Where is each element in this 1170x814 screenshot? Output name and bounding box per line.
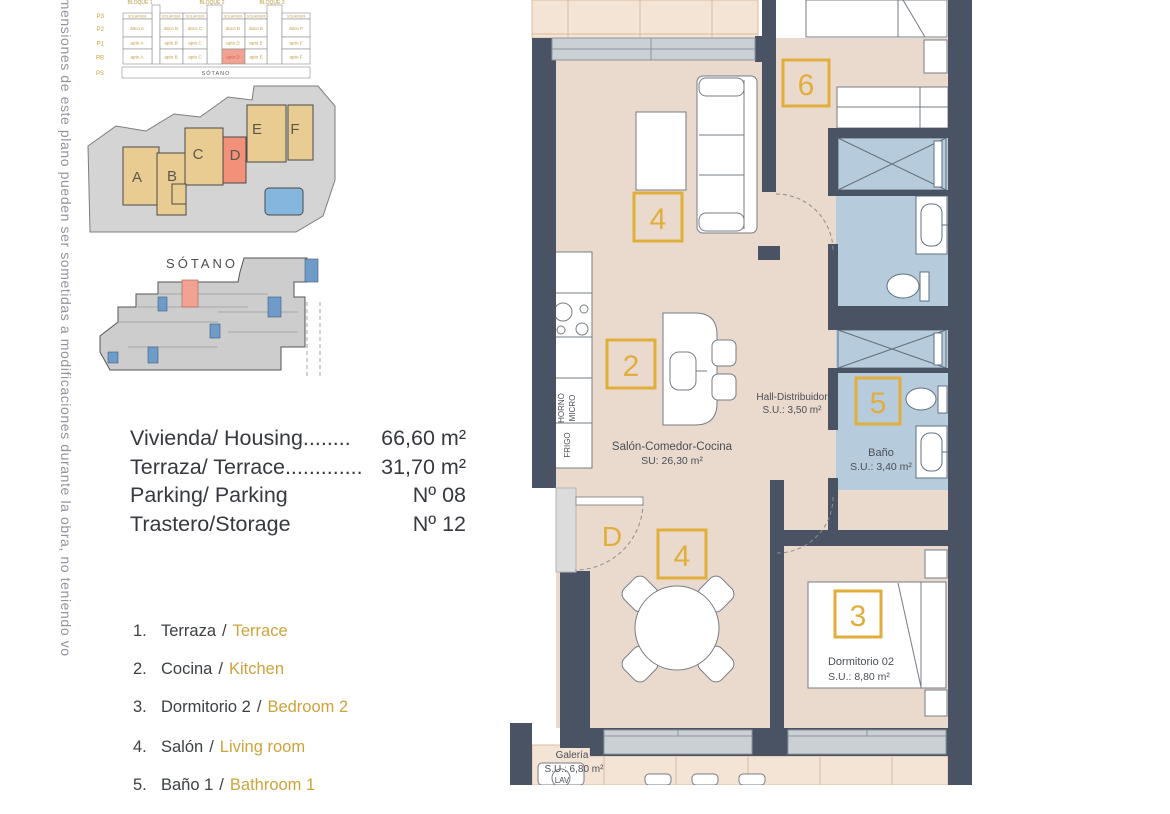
svg-text:5: 5 — [870, 387, 887, 420]
nightstand-2b — [925, 690, 947, 716]
svg-text:SOLARIUM: SOLARIUM — [186, 14, 205, 18]
svg-text:P2: P2 — [97, 27, 105, 33]
svg-text:apto C: apto C — [188, 55, 202, 60]
svg-text:SOLARIUM: SOLARIUM — [247, 14, 266, 18]
washbasin-1 — [916, 196, 950, 254]
wall-bath-divider-2 — [836, 306, 948, 330]
svg-text:apto E: apto E — [249, 41, 262, 46]
salon-label: Salón-Comedor-Cocina — [612, 441, 733, 453]
washbasin-2 — [916, 426, 950, 478]
terrace-top — [532, 0, 758, 38]
info-row-vivienda: Vivienda/ Housing........66,60 m² — [130, 424, 466, 453]
svg-text:3: 3 — [850, 600, 867, 633]
coffee-table — [636, 112, 686, 190]
svg-text:apto E: apto E — [249, 55, 262, 60]
svg-text:ático A: ático A — [130, 26, 145, 31]
info-row-trastero: Trastero/StorageNº 12 — [130, 510, 466, 539]
wall-right — [948, 0, 972, 785]
salon-area: SU: 26,30 m² — [641, 455, 703, 467]
dormitorio2-label: Dormitorio 02 — [828, 656, 894, 668]
svg-text:BLOQUE 1: BLOQUE 1 — [127, 0, 152, 6]
floor-plan: HORNO MICRO FRIGO — [490, 0, 1010, 785]
svg-text:C: C — [193, 146, 204, 163]
wall-bedroom2-left — [770, 480, 784, 728]
block-headers: BLOQUE 1 BLOQUE 2 BLOQUE 3 — [127, 0, 284, 6]
entrance-opening — [556, 488, 576, 572]
wardrobe-1 — [837, 87, 948, 128]
stool-2 — [712, 374, 736, 400]
svg-text:2: 2 — [623, 350, 640, 383]
svg-text:ático B: ático B — [164, 26, 178, 31]
svg-text:E: E — [252, 121, 262, 138]
wall-left-lower — [560, 571, 590, 748]
svg-text:SOLARIUM: SOLARIUM — [162, 14, 181, 18]
legend-item-3: 3. Dormitorio 2 / Bedroom 2 — [133, 698, 348, 717]
floor-labels: P3 P2 P1 PB PS — [96, 14, 105, 77]
wall-bedroom2-top — [782, 530, 948, 546]
horno-label: HORNO — [557, 393, 566, 423]
bano-area: S.U.: 3,40 m² — [850, 461, 912, 473]
hall-label: Hall-Distribuidor — [756, 392, 828, 403]
svg-text:P3: P3 — [97, 14, 105, 20]
svg-text:apto F: apto F — [289, 55, 302, 60]
svg-text:apto D: apto D — [226, 41, 240, 46]
lav-label: LAV — [555, 776, 570, 785]
legend-item-4: 4. Salón / Living room — [133, 738, 305, 757]
basement-band-label: SÓTANO — [202, 70, 231, 77]
stool-1 — [712, 340, 736, 366]
building-c — [185, 128, 223, 185]
micro-label: MICRO — [568, 395, 577, 422]
svg-text:4: 4 — [674, 540, 691, 573]
plan-sheet: imensiones de este plano pueden ser some… — [0, 0, 1170, 785]
sotano-title: SÓTANO — [166, 256, 238, 271]
site-plan: A B C D E F — [86, 84, 338, 234]
legend-item-2: 2. Cocina / Kitchen — [133, 660, 284, 679]
legend-item-5: 5. Baño 1 / Bathroom 1 — [133, 776, 315, 795]
wall-bath-left-3 — [828, 368, 838, 430]
sotano-highlight-storage — [182, 280, 198, 307]
svg-text:F: F — [290, 121, 299, 138]
info-row-terraza: Terraza/ Terrace.............31,70 m² — [130, 453, 466, 482]
svg-text:apto A: apto A — [130, 41, 144, 46]
svg-text:SOLARIUM: SOLARIUM — [128, 14, 147, 18]
wall-bath-left-1 — [828, 128, 838, 196]
svg-text:SOLARIUM: SOLARIUM — [224, 14, 243, 18]
wall-bath-divider-1 — [836, 190, 948, 196]
bed-1 — [806, 0, 947, 37]
dormitorio2-area: S.U.: 8,80 m² — [828, 671, 890, 683]
wall-bath-top — [828, 128, 948, 138]
bano-label: Baño — [868, 447, 894, 459]
svg-text:D: D — [230, 147, 241, 164]
svg-text:ático E: ático E — [249, 26, 263, 31]
badge-entrance: D — [602, 521, 622, 552]
island-sink — [670, 352, 696, 390]
svg-text:4: 4 — [650, 203, 667, 236]
svg-text:PS: PS — [96, 71, 104, 77]
svg-text:apto F: apto F — [289, 41, 302, 46]
sotano-dashed-lines — [307, 302, 320, 377]
frigo-label: FRIGO — [563, 432, 572, 457]
planter-3 — [739, 774, 765, 785]
svg-text:apto C: apto C — [188, 41, 202, 46]
svg-text:apto B: apto B — [164, 41, 177, 46]
wall-bedroom1-left — [762, 0, 776, 192]
surface-info: Vivienda/ Housing........66,60 m² Terraz… — [130, 424, 466, 538]
info-row-parking: Parking/ ParkingNº 08 — [130, 481, 466, 510]
planter-1 — [645, 774, 671, 785]
window-bottom-2 — [788, 730, 946, 754]
nightstand-2a — [925, 550, 947, 578]
svg-text:A: A — [132, 169, 142, 186]
door-leaf — [576, 497, 643, 505]
hall-area: S.U.: 3,50 m² — [763, 405, 823, 416]
svg-text:B: B — [167, 168, 177, 185]
galeria-area: S.U.: 6,80 m² — [545, 764, 605, 775]
wall-left-upper — [532, 38, 556, 488]
dining-set — [619, 573, 737, 685]
window-bottom-1 — [604, 730, 752, 754]
planter-2 — [692, 774, 718, 785]
elevation-schematic: BLOQUE 1 BLOQUE 2 BLOQUE 3 SOLARIUMSOLAR… — [90, 0, 340, 97]
svg-text:PB: PB — [96, 56, 104, 62]
pool — [265, 188, 303, 215]
svg-text:SOLARIUM: SOLARIUM — [287, 14, 306, 18]
wall-outer-stub — [510, 723, 532, 785]
wall-hall-stub — [758, 246, 780, 260]
window-top — [552, 38, 755, 60]
wall-bath-divider-3 — [836, 368, 948, 373]
svg-text:ático F: ático F — [289, 26, 303, 31]
galeria-label: Galería — [556, 750, 589, 761]
svg-text:P1: P1 — [97, 42, 105, 48]
sofa — [697, 76, 757, 233]
svg-text:ático C: ático C — [188, 26, 203, 31]
svg-text:6: 6 — [798, 69, 815, 102]
svg-text:apto A: apto A — [130, 55, 144, 60]
nightstand-1 — [924, 40, 947, 73]
dining-table — [635, 586, 719, 670]
svg-text:apto D: apto D — [226, 55, 240, 60]
disclaimer-vertical-text: imensiones de este plano pueden ser some… — [54, 0, 74, 814]
svg-text:ático D: ático D — [226, 26, 241, 31]
legend-item-1: 1. Terraza / Terrace — [133, 622, 288, 641]
building-annex — [172, 184, 186, 204]
svg-text:apto B: apto B — [164, 55, 177, 60]
sotano-plan: SÓTANO — [98, 252, 340, 392]
